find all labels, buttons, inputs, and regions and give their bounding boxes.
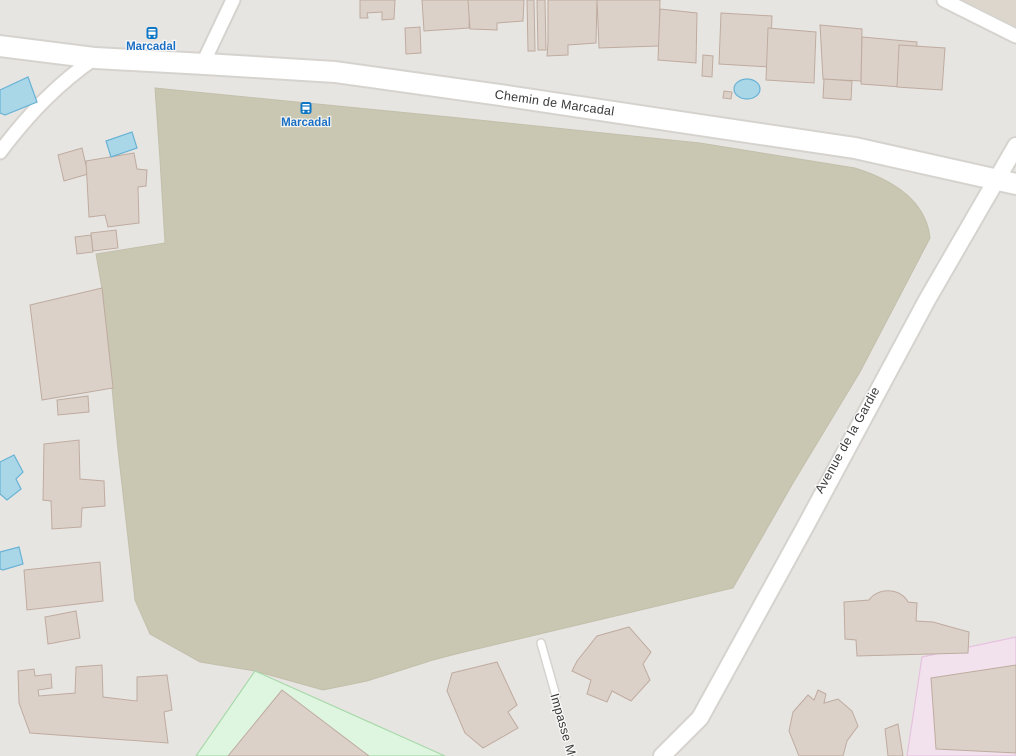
- building: [823, 79, 852, 100]
- map-svg: Chemin de Marcadal Avenue de la Gardie I…: [0, 0, 1016, 756]
- building: [527, 0, 535, 51]
- building: [30, 288, 113, 400]
- building: [719, 13, 772, 67]
- bus-stop-label: Marcadal: [281, 117, 331, 129]
- building: [45, 611, 80, 644]
- building: [75, 235, 93, 254]
- building: [931, 665, 1016, 753]
- building: [91, 230, 118, 251]
- bus-icon: [301, 102, 312, 114]
- pool: [734, 79, 760, 99]
- building: [597, 0, 660, 48]
- bus-stop-label: Marcadal: [126, 41, 176, 53]
- building: [422, 0, 470, 31]
- building: [766, 28, 816, 83]
- bus-icon: [147, 27, 158, 39]
- building: [820, 25, 862, 81]
- building: [723, 91, 732, 99]
- building: [537, 0, 546, 50]
- building: [18, 665, 172, 743]
- building: [658, 9, 697, 63]
- building: [702, 55, 713, 77]
- building: [24, 562, 103, 610]
- building: [405, 27, 421, 54]
- building: [897, 45, 945, 90]
- map-canvas[interactable]: Chemin de Marcadal Avenue de la Gardie I…: [0, 0, 1016, 756]
